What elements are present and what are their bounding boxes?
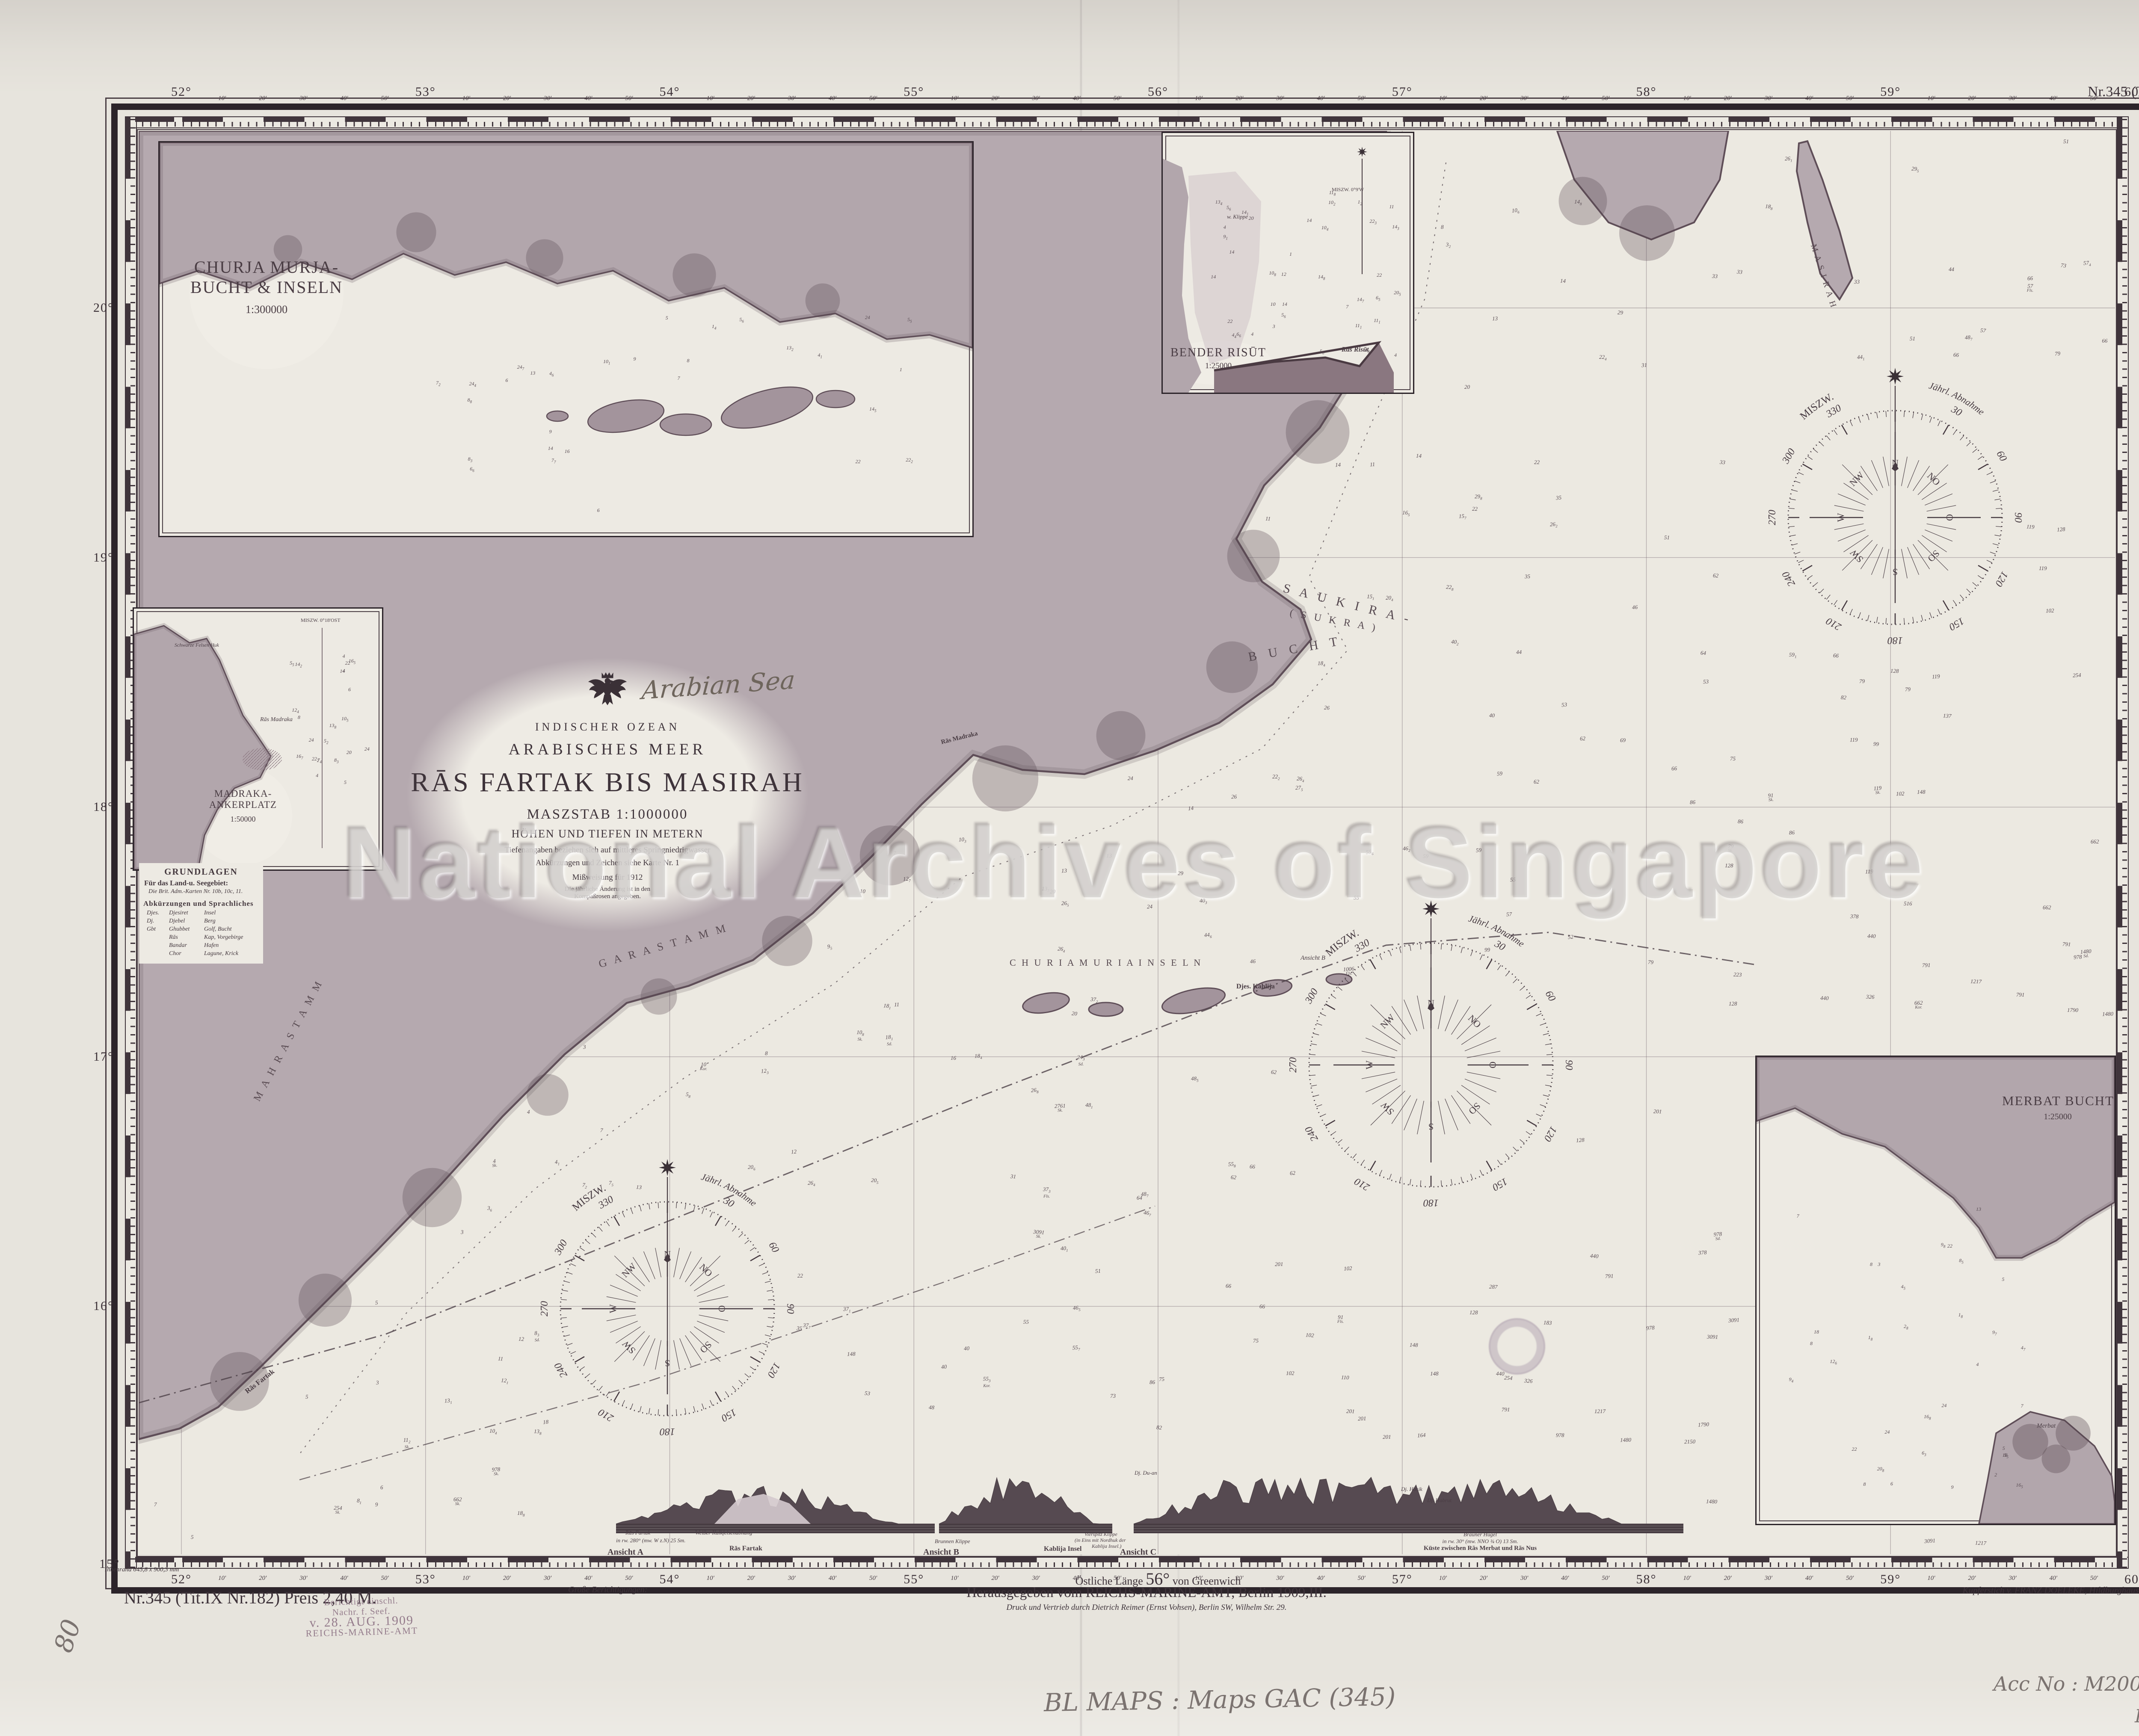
depth-sounding: 9: [633, 357, 636, 361]
depth-sounding: 662: [2043, 905, 2051, 910]
compass-degree-label: 120: [765, 1360, 782, 1379]
depth-sounding: 3: [460, 1230, 463, 1234]
title-note-change1: Die jährliche Änderung ist in den: [406, 886, 809, 893]
depth-sounding: 128: [1729, 1001, 1737, 1006]
depth-sounding: 66: [1250, 1164, 1255, 1169]
depth-sounding: 57Fls.: [2027, 284, 2034, 293]
depth-sounding: 86: [1689, 800, 1695, 805]
compass-rose: 306090120150180210240270300330NNOOSOSSWW…: [1260, 894, 1602, 1236]
minute-label: 40': [1317, 95, 1324, 102]
compass-degree-label: 180: [660, 1426, 675, 1437]
longitude-label: 58°: [1636, 85, 1657, 99]
depth-sounding: 8: [765, 1051, 768, 1056]
compass-degree-label: 30: [1492, 938, 1507, 953]
depth-sounding: 9: [549, 429, 552, 434]
bottom-longitude-caption: 56°: [1146, 1569, 1170, 1588]
depth-sounding: 148: [1410, 1343, 1418, 1347]
compass-degree-label: 210: [1824, 615, 1843, 633]
depth-sounding: 64: [1701, 651, 1706, 656]
longitude-label: 57°: [1392, 85, 1413, 99]
minute-label: 40': [829, 95, 836, 102]
depth-sounding: 48: [929, 1405, 935, 1410]
profile-caption: Rās Fartak: [729, 1545, 762, 1553]
depth-sounding: 79: [1859, 679, 1865, 683]
depth-sounding: 24: [309, 738, 314, 742]
imprint-printer: Druck und Vertrieb durch Dietrich Reimer…: [1006, 1603, 1286, 1612]
depth-sounding: 181Sd.: [886, 1034, 894, 1047]
bottom-longitude-caption: Östliche Länge: [1075, 1575, 1146, 1587]
compass-degree-label: 240: [552, 1360, 570, 1379]
depth-sounding: 53: [1561, 702, 1567, 707]
depth-sounding: 2761Sk.: [1055, 1103, 1066, 1113]
depth-sounding: 12: [1281, 272, 1286, 277]
minute-label: 30': [1276, 1575, 1284, 1582]
compass-degree-label: 270: [1288, 1057, 1299, 1073]
legend-rows: Djes.DjesiretInselDj.DjebelBergGbtGhubbe…: [139, 909, 263, 958]
depth-sounding: 40: [941, 1364, 947, 1369]
depth-sounding: 295: [1911, 166, 1919, 174]
depth-sounding: 20: [1050, 889, 1055, 894]
depth-sounding: 66: [2102, 338, 2107, 343]
engraver-note: Kupferstich v. FRANZ DOELEKE, Hildburgha…: [1963, 1585, 2139, 1596]
longitude-label: 53°: [415, 1572, 436, 1587]
depth-sounding: 77: [551, 458, 556, 464]
handwritten-corner-number: 80: [48, 1616, 87, 1656]
depth-sounding: 326: [1866, 994, 1875, 999]
depth-sounding: 481: [1085, 1102, 1093, 1109]
title-main: RĀS FARTAK BIS MASIRAH: [406, 766, 809, 798]
profile-caption: Brauner Hügel: [1464, 1531, 1497, 1538]
depth-sounding: 56: [1281, 313, 1286, 319]
depth-sounding: 6: [380, 1485, 383, 1490]
compass-degree-label: 120: [1993, 569, 2010, 588]
depth-sounding: 142: [295, 662, 302, 668]
minute-label: 40': [584, 95, 592, 102]
depth-sounding: 201: [1346, 1408, 1355, 1414]
minute-label: 10': [218, 1575, 226, 1582]
compass-degree-label: 210: [596, 1406, 615, 1424]
depth-sounding: 662Kor.: [1914, 1000, 1923, 1010]
depth-sounding: 791: [2016, 992, 2025, 997]
profile-caption: Kablija Insel: [1044, 1545, 1081, 1553]
longitude-label: 60°: [2124, 85, 2139, 99]
depth-sounding: 7: [600, 1128, 603, 1133]
depth-sounding: 3: [376, 1380, 379, 1385]
title-note-variation: Mißweisung für 1912: [406, 873, 809, 882]
depth-sounding: 58: [686, 1091, 691, 1099]
depth-sounding: 8: [298, 715, 300, 720]
depth-sounding: 167: [296, 754, 303, 760]
depth-sounding: 4: [1394, 353, 1397, 358]
depth-sounding: 82: [1156, 1425, 1162, 1430]
depth-sounding: 35: [1525, 574, 1530, 579]
depth-sounding: 131: [444, 1398, 452, 1405]
depth-sounding: 91Fls.: [1337, 1315, 1344, 1324]
depth-sounding: 3091Sk.: [1033, 1229, 1045, 1239]
minute-label: 10': [1439, 1575, 1447, 1582]
title-note-abbrev: Abkürzungen und Zeichen siehe Karte Nr. …: [406, 858, 809, 868]
compass-degree-label: 150: [1947, 615, 1966, 633]
depth-sounding: 55: [1023, 1319, 1029, 1324]
depth-sounding: 66: [1259, 1304, 1265, 1309]
depth-sounding: 4: [316, 773, 318, 778]
depth-sounding: 14: [1188, 805, 1194, 810]
minute-label: 40': [1073, 95, 1081, 102]
depth-sounding: 261: [1785, 156, 1792, 163]
bottom-longitude-caption: von Greenwich: [1170, 1575, 1241, 1587]
compass-degree-label: 60: [1543, 989, 1558, 1003]
depth-sounding: 164: [1417, 1432, 1426, 1437]
minute-label: 30': [788, 95, 796, 102]
corrections-heading: Große Berichtigungen:: [568, 1585, 647, 1595]
depth-sounding: 3: [583, 1044, 586, 1049]
legend-row: ChorLagune, Krick: [147, 949, 263, 958]
depth-sounding: 111: [1355, 323, 1362, 330]
depth-sounding: 14: [1307, 218, 1312, 223]
compass-degree-label: 90: [785, 1304, 796, 1314]
depth-sounding: 75: [1159, 1376, 1165, 1381]
legend-cell: Insel: [204, 909, 216, 917]
round-stamp: [1489, 1318, 1545, 1375]
depth-sounding: 132: [786, 346, 794, 352]
depth-sounding: 148: [1430, 1371, 1438, 1376]
depth-sounding: 3091: [1728, 1317, 1740, 1323]
depth-sounding: 44: [1516, 650, 1522, 654]
legend-row: Dj.DjebelBerg: [147, 917, 263, 925]
legend-cell: Rās: [169, 933, 204, 941]
legend-cell: Golf, Bucht: [204, 925, 232, 933]
minute-label: 20': [503, 95, 511, 102]
depth-sounding: 51: [1095, 1268, 1101, 1273]
depth-sounding: 1217: [1975, 1540, 1986, 1545]
minute-label: 10': [1927, 1575, 1935, 1582]
legend-cell: [147, 933, 169, 941]
depth-sounding: 13: [530, 371, 535, 376]
profile-title: Ansicht B: [923, 1547, 959, 1557]
depth-sounding: 56: [1227, 205, 1231, 212]
minute-label: 30': [2009, 1575, 2017, 1582]
depth-sounding: 22: [1377, 273, 1382, 278]
compass-degree-label: 30: [721, 1195, 736, 1210]
depth-sounding: 138: [329, 723, 336, 730]
graticule-band-bottom: [125, 1557, 2129, 1569]
depth-sounding: 24: [1147, 904, 1152, 909]
minute-label: 30': [544, 95, 551, 102]
longitude-label: 52°: [171, 1572, 192, 1587]
depth-sounding: 128: [1469, 1310, 1478, 1315]
depth-sounding: 222: [312, 757, 319, 763]
depth-sounding: 401: [1061, 1246, 1068, 1253]
depth-sounding: 1217: [1970, 979, 1982, 984]
compass-degree-label: 240: [1303, 1124, 1321, 1143]
handwritten-acc-no: Acc No : M2006 - 00315 - BL: [1994, 1672, 2139, 1695]
profile-peak-label: Dj. Habrut: [1427, 1497, 1452, 1504]
depth-sounding: 791: [1502, 1407, 1510, 1412]
minute-label: 10': [1927, 95, 1935, 102]
depth-sounding: 378: [1850, 914, 1859, 919]
title-scale: MASZSTAB 1:1000000: [406, 807, 809, 822]
longitude-label: 56°: [1148, 85, 1168, 99]
minute-label: 30': [1765, 95, 1772, 102]
depth-sounding: 9: [375, 1502, 378, 1507]
profile-caption: Brunnen Klippe: [935, 1538, 970, 1545]
depth-sounding: 31: [1010, 1174, 1016, 1179]
longitude-label: 55°: [904, 1572, 924, 1587]
minute-label: 50': [1602, 1575, 1609, 1582]
depth-sounding: 24: [1884, 1430, 1890, 1434]
depth-sounding: 3091: [1924, 1538, 1936, 1544]
depth-sounding: 22: [1852, 1447, 1857, 1452]
depth-sounding: 4: [1976, 1362, 1979, 1367]
depth-sounding: 4Sk.: [492, 1159, 498, 1168]
minute-label: 50': [381, 95, 389, 102]
depth-sounding: 1480: [1620, 1437, 1631, 1442]
depth-sounding: 487: [1965, 334, 1973, 342]
minute-label: 40': [2050, 1575, 2057, 1582]
inset-merbat-bucht: MERBAT BUCHT 1:25000 Merbat 851685182216…: [1755, 1056, 2116, 1525]
depth-sounding: 298: [1474, 494, 1482, 501]
depth-sounding: 8: [687, 358, 689, 363]
depth-sounding: 103: [958, 837, 966, 844]
title-block: INDISCHER OZEAN ARABISCHES MEER RĀS FART…: [406, 658, 809, 932]
compass-cardinal-label: O: [1487, 1062, 1498, 1068]
compass-degree-label: 60: [1994, 449, 2009, 464]
minute-label: 50': [1358, 95, 1366, 102]
depth-sounding: 3: [1878, 1262, 1880, 1267]
depth-sounding: 29: [1618, 310, 1624, 315]
inset-madraka-title: MADRAKA- ANKERPLATZ 1:50000: [194, 788, 292, 824]
depth-sounding: 53: [865, 1390, 871, 1396]
depth-sounding: 165: [2016, 1483, 2023, 1489]
depth-sounding: 63: [1922, 1451, 1926, 1457]
minute-label: 30': [1765, 1575, 1772, 1582]
depth-sounding: 33: [1712, 273, 1718, 278]
compass-cardinal-label: W: [607, 1304, 618, 1313]
depth-sounding: 13: [1061, 868, 1067, 873]
compass-degree-label: 210: [1353, 1176, 1372, 1193]
depth-sounding: 5: [305, 1394, 308, 1399]
compass-degree-label: 90: [2012, 512, 2023, 523]
minute-label: 20': [259, 95, 267, 102]
depth-sounding: 33: [1736, 269, 1742, 274]
depth-sounding: 6: [505, 378, 508, 383]
depth-sounding: 181: [883, 1003, 891, 1011]
depth-sounding: 102: [1344, 1266, 1352, 1271]
depth-sounding: 91Sk.: [1768, 793, 1774, 803]
depth-sounding: 47: [2021, 1346, 2026, 1352]
depth-sounding: 82: [1841, 695, 1847, 700]
depth-sounding: 265: [1061, 900, 1069, 908]
minute-label: 10': [462, 1575, 470, 1582]
depth-sounding: 791: [1605, 1274, 1613, 1279]
depth-sounding: 28: [1904, 1324, 1908, 1331]
depth-sounding: 69: [1620, 738, 1626, 742]
latitude-label: 20°: [93, 301, 114, 315]
depth-sounding: 95: [827, 944, 832, 951]
depth-sounding: 62: [1231, 1175, 1237, 1180]
depth-sounding: 208: [1877, 1467, 1884, 1473]
title-sea: ARABISCHES MEER: [406, 740, 809, 759]
minute-label: 30': [299, 1575, 307, 1582]
depth-sounding: 9: [1951, 1485, 1953, 1490]
depth-sounding: 402: [1451, 639, 1458, 647]
depth-sounding: 2: [1994, 1473, 1997, 1477]
depth-sounding: 119: [1932, 674, 1940, 679]
depth-sounding: 557: [1072, 1345, 1080, 1353]
depth-sounding: 11: [1389, 204, 1394, 209]
depth-sounding: 440: [1496, 1371, 1504, 1376]
latitude-label: 18°: [93, 800, 114, 814]
inset-map-art: [134, 609, 382, 869]
profile-caption: Weißer Kalkfelsenabhang: [695, 1529, 752, 1536]
depth-sounding: 224: [1599, 355, 1606, 362]
longitude-label: 59°: [1880, 1572, 1901, 1587]
inset-map-art: [1757, 1057, 2115, 1524]
depth-sounding: 108: [1269, 271, 1276, 277]
inset-bender-title: BENDER RISŪT 1:25000: [1165, 346, 1272, 371]
minute-label: 50': [625, 95, 633, 102]
depth-sounding: 94: [1789, 1377, 1794, 1384]
depth-sounding: 44: [1232, 333, 1236, 339]
minute-label: 10': [707, 1575, 714, 1582]
depth-sounding: 22: [1227, 319, 1232, 324]
minute-label: 20': [1968, 95, 1976, 102]
legend-cell: Djes.: [147, 909, 169, 917]
depth-sounding: 128: [1725, 863, 1733, 868]
depth-sounding: 59: [1475, 848, 1481, 853]
minute-label: 30': [1520, 1575, 1528, 1582]
minute-label: 10': [951, 95, 958, 102]
depth-sounding: 10Kor.: [700, 1062, 707, 1071]
inset-churia-title: CHURJA MURJA- BUCHT & INSELN 1:300000: [190, 257, 344, 316]
minute-label: 30': [2009, 95, 2017, 102]
depth-sounding: 52: [324, 739, 329, 745]
depth-sounding: 5: [2003, 1446, 2005, 1451]
depth-sounding: 1790: [2067, 1008, 2078, 1012]
minute-label: 10': [1439, 95, 1447, 102]
minute-label: 10': [1195, 95, 1203, 102]
depth-sounding: 6: [1890, 1482, 1893, 1486]
profile-peak-label: Dj. Hasik: [1401, 1486, 1422, 1493]
legend-cell: Chor: [169, 949, 204, 958]
compass-degree-label: 60: [766, 1240, 781, 1255]
correction-stamp: Berichtigt einschl. Nachr. f. Seef. v. 2…: [290, 1594, 433, 1639]
depth-sounding: 244: [469, 382, 477, 388]
longitude-label: 58°: [1636, 1572, 1657, 1587]
depth-sounding: 79Sk.: [1727, 844, 1733, 854]
minute-label: 50': [381, 1575, 389, 1582]
depth-sounding: 20: [1071, 1011, 1077, 1016]
depth-sounding: 85: [1959, 1258, 1964, 1265]
depth-sounding: 46: [1250, 959, 1256, 964]
longitude-label: 55°: [904, 85, 924, 99]
profile-caption: Kablija Insel.): [1092, 1543, 1121, 1550]
depth-sounding: 24: [1128, 776, 1133, 781]
depth-sounding: 66: [1953, 352, 1959, 357]
depth-sounding: 6: [348, 687, 351, 692]
depth-sounding: 440: [1867, 933, 1876, 938]
depth-sounding: 14: [1416, 453, 1422, 458]
minute-label: 50': [625, 1575, 633, 1582]
scanned-map-sheet: Nr.345 (Tit.IX Nr.182) INDISCHER OZEAN A…: [0, 0, 2139, 1736]
depth-sounding: 223: [1733, 972, 1742, 977]
depth-sounding: 7: [2021, 1404, 2023, 1408]
depth-sounding: 14: [1335, 462, 1341, 467]
depth-sounding: 102: [1286, 1371, 1295, 1375]
depth-sounding: 201: [1275, 1262, 1283, 1266]
minute-label: 30': [1276, 95, 1284, 102]
compass-cardinal-label: S: [665, 1358, 670, 1369]
depth-sounding: 118: [1363, 348, 1370, 354]
latitude-corner-label: 15°: [99, 1557, 120, 1571]
depth-sounding: 51: [1664, 535, 1670, 540]
depth-sounding: 53: [1703, 679, 1709, 684]
depth-sounding: 112Sk.: [403, 1437, 410, 1449]
depth-sounding: 134: [1215, 200, 1223, 206]
depth-sounding: 124: [292, 708, 299, 714]
depth-sounding: 373Fls.: [1043, 1187, 1051, 1199]
legend-line1: Für das Land-u. Seegebiet:: [144, 879, 263, 887]
depth-sounding: 26: [1231, 794, 1237, 799]
depth-sounding: 62: [1534, 779, 1539, 784]
depth-sounding: 7: [893, 851, 896, 855]
compass-degree-label: 300: [1780, 447, 1798, 466]
depth-sounding: 110: [1341, 1375, 1349, 1380]
minute-label: 50': [2090, 95, 2098, 102]
depth-sounding: 141: [1241, 210, 1249, 216]
depth-sounding: 662Sk.: [453, 1497, 462, 1506]
depth-sounding: 79: [1905, 686, 1910, 691]
depth-sounding: 20: [347, 750, 352, 755]
minute-label: 10': [707, 95, 714, 102]
compass-degree-label: 90: [1563, 1060, 1574, 1070]
depth-sounding: 20: [1464, 384, 1470, 389]
depth-sounding: 57: [1980, 328, 1986, 333]
depth-sounding: 86: [1738, 819, 1744, 824]
depth-sounding: 13: [1976, 1207, 1981, 1212]
depth-sounding: 29: [1177, 871, 1183, 875]
inset-madraka: MADRAKA- ANKERPLATZ 1:50000 Schwarze Fel…: [133, 607, 383, 871]
depth-sounding: 88: [467, 398, 472, 404]
depth-sounding: 151: [1367, 594, 1375, 601]
minute-label: 50': [1358, 1575, 1366, 1582]
minute-label: 40': [1805, 1575, 1813, 1582]
depth-sounding: 108Sk.: [856, 1029, 864, 1041]
depth-sounding: 184: [1318, 661, 1325, 668]
depth-sounding: 121: [501, 1378, 509, 1385]
minute-label: 50': [1846, 95, 1854, 102]
depth-sounding: 104: [489, 1428, 497, 1436]
depth-sounding: 83: [334, 758, 339, 764]
minute-label: 50': [869, 1575, 877, 1582]
depth-sounding: 204: [1386, 595, 1393, 603]
compass-degree-label: 300: [1303, 987, 1320, 1006]
depth-sounding: 51: [1910, 336, 1915, 341]
minute-label: 20': [1724, 95, 1732, 102]
depth-sounding: 978Sk.: [492, 1467, 501, 1476]
profile-caption: Vierspitz Klippe: [1084, 1531, 1117, 1538]
depth-sounding: 66: [1236, 332, 1241, 338]
minute-label: 20': [991, 95, 999, 102]
compass-degree-label: 270: [539, 1301, 550, 1316]
minute-label: 20': [747, 1575, 755, 1582]
depth-sounding: 222: [906, 458, 913, 464]
depth-sounding: 10: [1271, 302, 1276, 307]
depth-sounding: 22: [1947, 1244, 1952, 1248]
depth-sounding: 62: [1580, 736, 1586, 741]
profile-caption: in rw. 280° (mw. W z.N) 25 Sm.: [616, 1537, 686, 1544]
depth-sounding: 978: [2074, 955, 2082, 960]
